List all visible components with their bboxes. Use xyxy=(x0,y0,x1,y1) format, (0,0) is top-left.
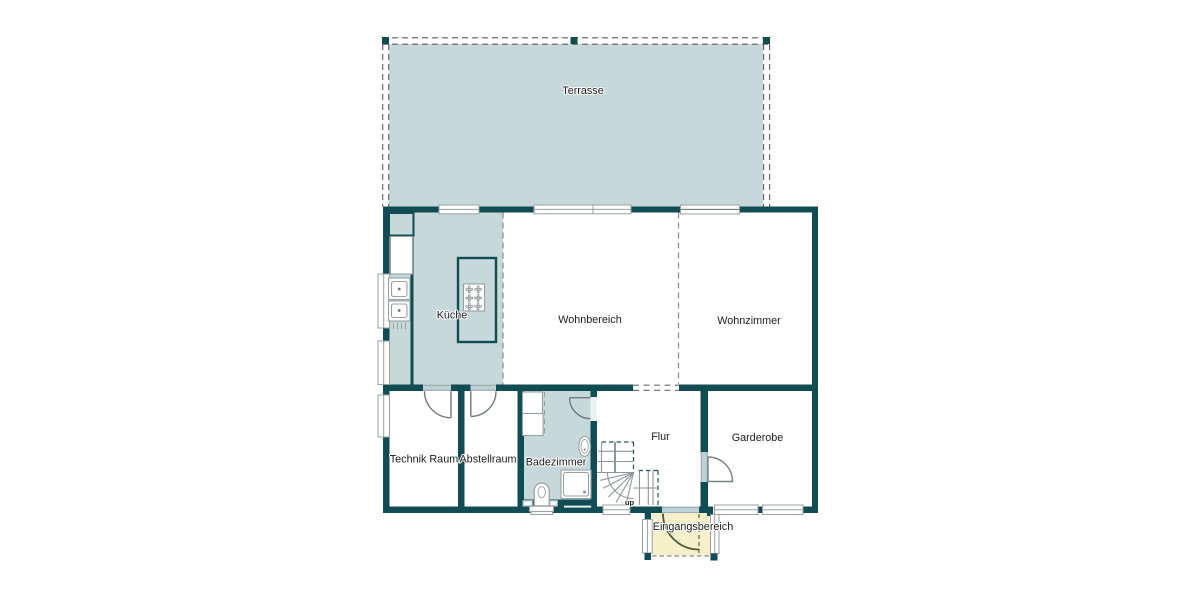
svg-text:Küche: Küche xyxy=(437,310,468,322)
svg-text:Wohnzimmer: Wohnzimmer xyxy=(717,315,781,327)
svg-text:Abstellraum: Abstellraum xyxy=(459,454,516,466)
svg-text:Technik Raum: Technik Raum xyxy=(390,454,458,466)
svg-text:Wohnbereich: Wohnbereich xyxy=(558,314,621,326)
svg-text:Badezimmer: Badezimmer xyxy=(526,457,587,469)
svg-text:Flur: Flur xyxy=(651,431,670,443)
svg-text:Eingangsbereich: Eingangsbereich xyxy=(653,521,733,533)
svg-text:up: up xyxy=(625,498,635,507)
svg-text:Garderobe: Garderobe xyxy=(732,432,784,444)
svg-text:Terrasse: Terrasse xyxy=(562,85,603,97)
